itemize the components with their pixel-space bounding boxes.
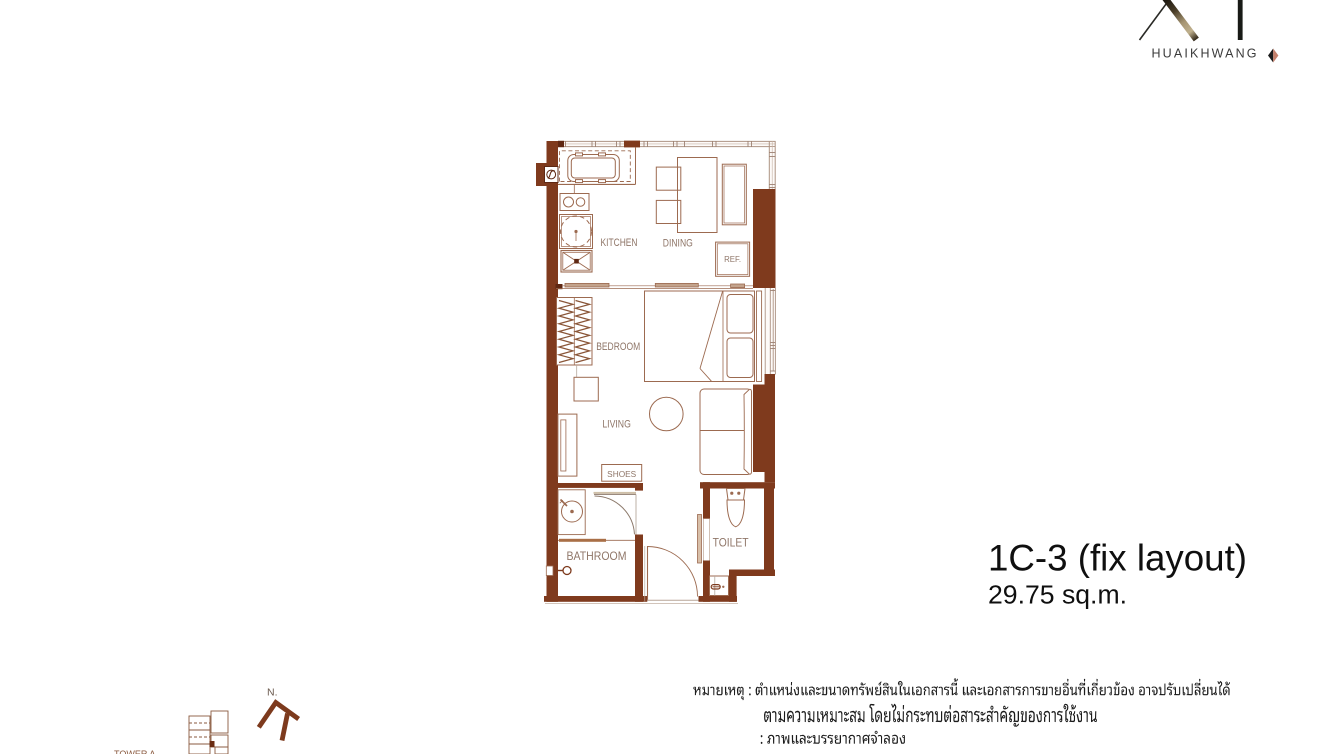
svg-text:1C-3 (fix layout): 1C-3 (fix layout): [988, 538, 1247, 579]
svg-text:DINING: DINING: [663, 238, 693, 250]
svg-text:TOILET: TOILET: [713, 536, 750, 550]
svg-text:HUAIKHWANG: HUAIKHWANG: [1152, 47, 1259, 61]
svg-text:LIVING: LIVING: [602, 419, 631, 431]
svg-text:BATHROOM: BATHROOM: [567, 549, 627, 563]
svg-text:N.: N.: [267, 687, 278, 699]
svg-text:29.75 sq.m.: 29.75 sq.m.: [988, 582, 1127, 610]
svg-text:BEDROOM: BEDROOM: [596, 341, 640, 353]
svg-text:TOWER A: TOWER A: [114, 749, 155, 754]
svg-text:SHOES: SHOES: [607, 470, 636, 479]
svg-text:KITCHEN: KITCHEN: [601, 237, 638, 249]
svg-text:REF.: REF.: [724, 255, 741, 264]
